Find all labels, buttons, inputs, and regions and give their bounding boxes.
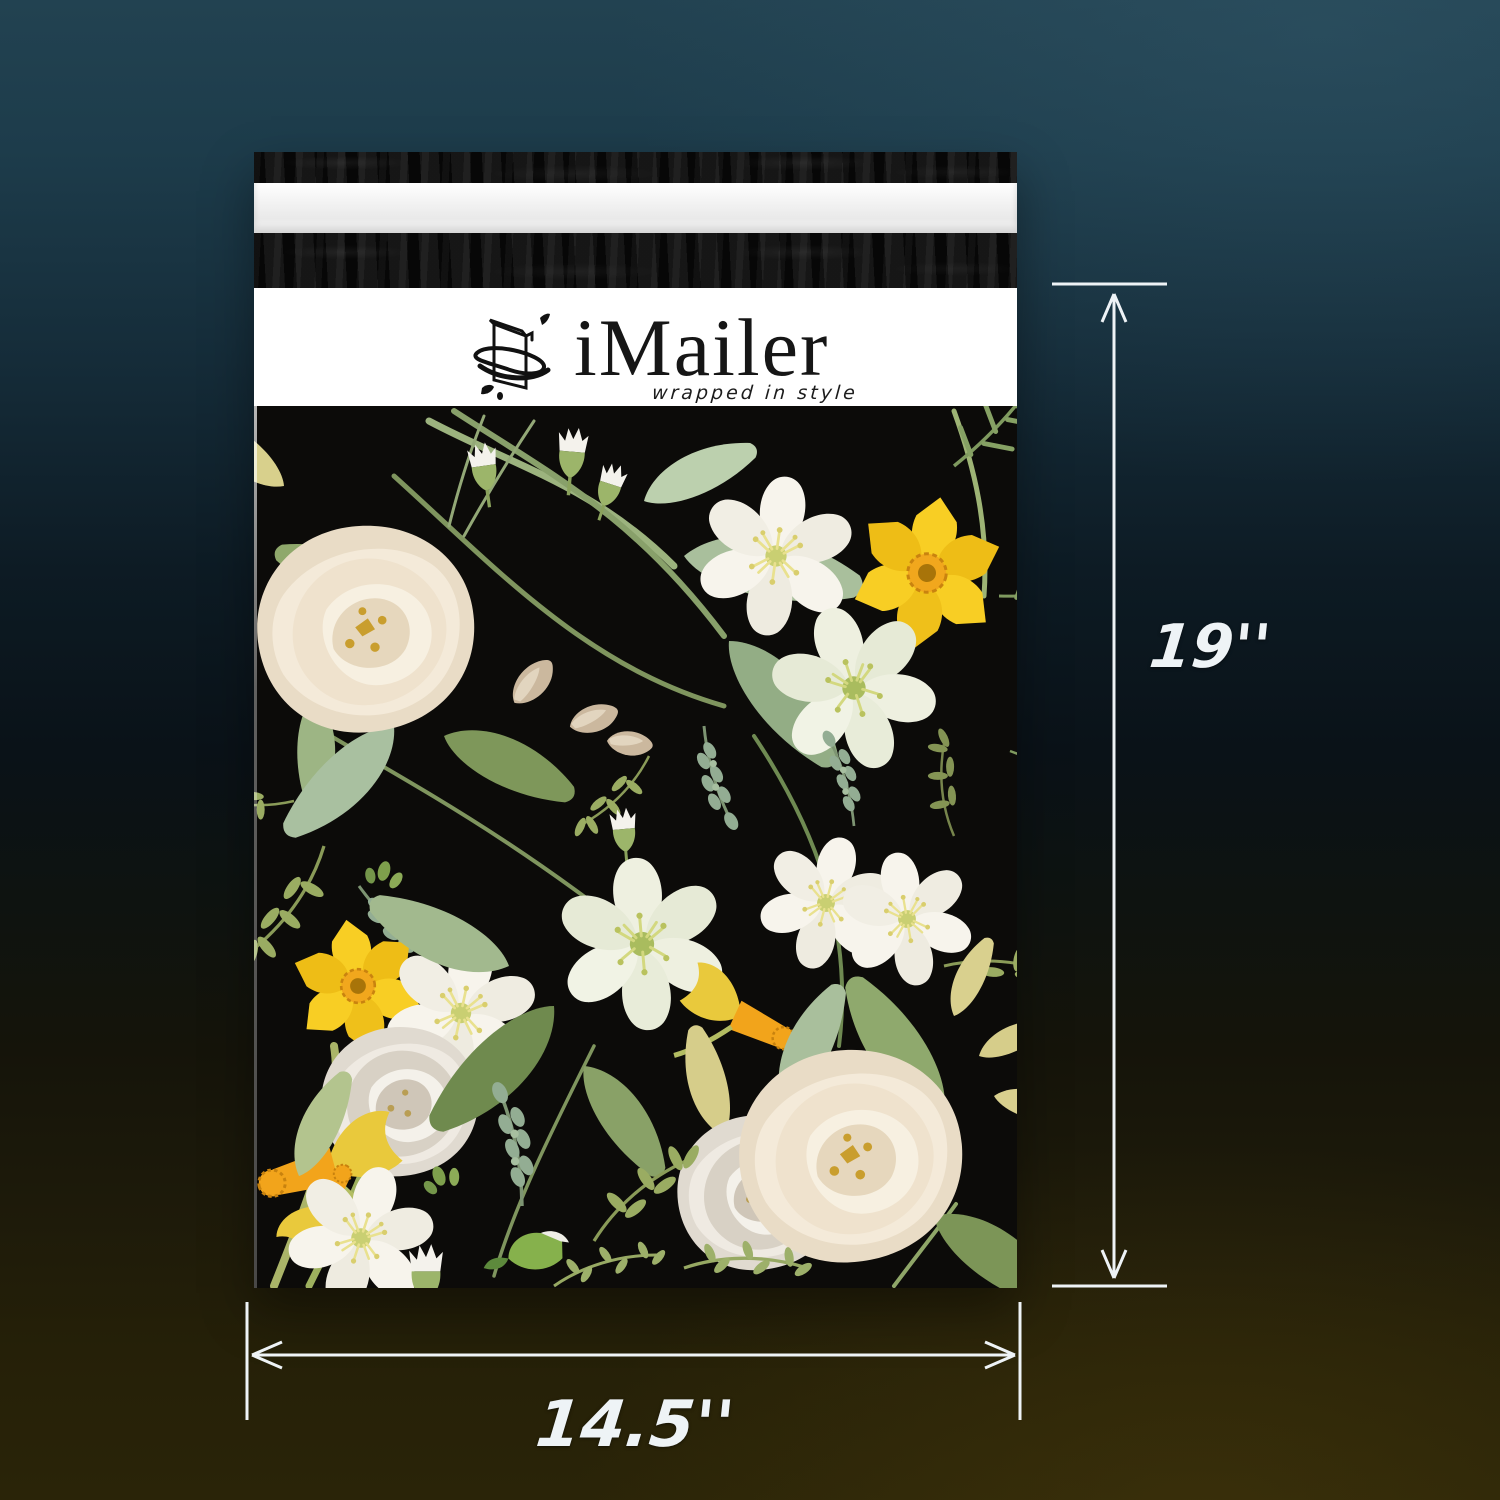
brand-tagline: wrapped in style — [651, 382, 858, 404]
poly-mailer-envelope: iMailer wrapped in style — [254, 152, 1017, 1288]
brand-text: iMailer wrapped in style — [574, 306, 858, 404]
arrow-down-icon — [1102, 1250, 1126, 1278]
product-image: iMailer wrapped in style — [0, 0, 1500, 1500]
height-dimension-label: 19'' — [1146, 612, 1333, 682]
logo-band: iMailer wrapped in style — [254, 288, 1017, 406]
width-dimension-label: 14.5'' — [476, 1388, 794, 1462]
flap-lower-strip — [254, 233, 1017, 288]
adhesive-seal-strip — [254, 183, 1017, 233]
brand-name: iMailer — [574, 306, 858, 390]
floral-print-panel — [254, 406, 1017, 1288]
brand-logo: iMailer wrapped in style — [470, 306, 858, 404]
book-swoosh-icon — [470, 310, 558, 402]
envelope-edge-highlight — [254, 288, 257, 1288]
arrow-up-icon — [1102, 294, 1126, 322]
flap-top-strip — [254, 152, 1017, 183]
arrow-left-icon — [252, 1342, 282, 1368]
arrow-right-icon — [985, 1342, 1015, 1368]
floral-pattern — [254, 406, 1017, 1288]
